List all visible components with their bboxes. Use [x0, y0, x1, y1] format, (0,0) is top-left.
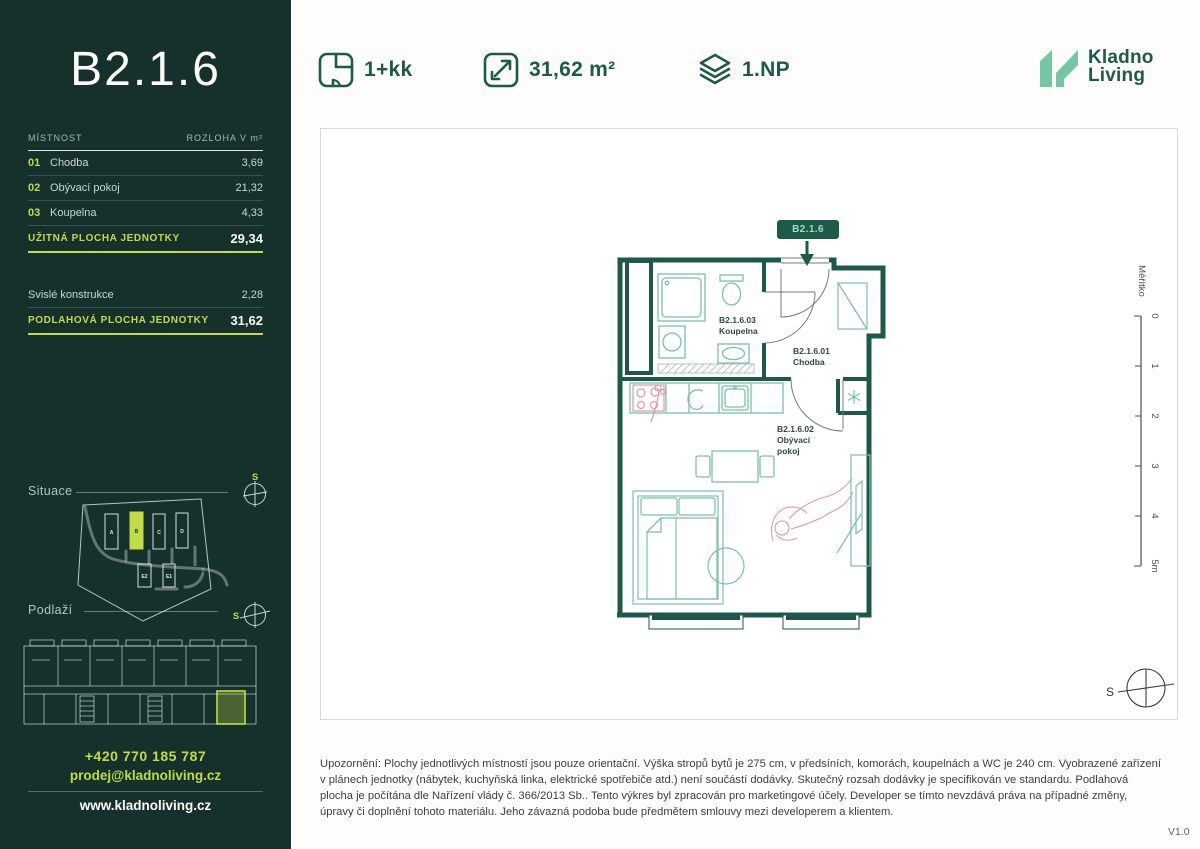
outer-walls [617, 260, 883, 615]
sidebar: B2.1.6 MÍSTNOST ROZLOHA V m² 01 Chodba 3… [0, 0, 291, 849]
boiler-closet [848, 390, 860, 404]
scale-tick: 4 [1149, 513, 1160, 518]
building-e2-label: E2 [141, 574, 147, 580]
building-b-label: B [135, 529, 139, 535]
floor-area-row: PODLAHOVÁ PLOCHA JEDNOTKY 31,62 [28, 308, 263, 335]
entrance-arrow-icon [799, 241, 815, 267]
utility-shaft [627, 261, 651, 373]
table-row: 03 Koupelna 4,33 [28, 201, 263, 226]
scale-tick: 0 [1149, 313, 1160, 318]
floor-area-label: PODLAHOVÁ PLOCHA JEDNOTKY [28, 315, 230, 326]
building-c-label: C [157, 530, 161, 536]
floor-layers-icon [697, 52, 733, 88]
room-label-chodba: B2.1.6.01 Chodba [793, 346, 830, 368]
contact-divider [28, 791, 263, 792]
col-header-room: MÍSTNOST [28, 133, 83, 143]
building-a-label: A [110, 530, 114, 536]
col-header-area: ROZLOHA V m² [186, 133, 263, 143]
website-link[interactable]: www.kladnoliving.cz [0, 798, 291, 813]
brand-logo: Kladno Living [1040, 49, 1154, 87]
stove-icon [633, 385, 666, 422]
room-name: Chodba [50, 157, 242, 169]
room-label-obyvaci: B2.1.6.02 Obývací pokoj [777, 424, 823, 457]
layout-icon [318, 52, 354, 88]
scale-tick: 5m [1149, 559, 1160, 572]
scale-tick: 3 [1149, 463, 1160, 468]
room-number: 03 [28, 207, 50, 219]
site-roads [85, 507, 227, 589]
usable-area-label: UŽITNÁ PLOCHA JEDNOTKY [28, 233, 230, 244]
floor-area-value: 31,62 [230, 313, 263, 328]
unit-title: B2.1.6 [0, 42, 291, 97]
brand-name-line2: Living [1088, 67, 1154, 85]
shower-icon [658, 274, 705, 321]
disclaimer-text: Upozornění: Plochy jednotlivých místnost… [320, 757, 1162, 821]
room-number: 01 [28, 157, 50, 169]
floor-plan-drawing: Měřítko 0 1 2 3 4 5m S [321, 129, 1177, 719]
site-boundary [78, 499, 211, 621]
person-on-lounge-sketch [771, 478, 853, 541]
podlazi-label: Podlaží [28, 603, 73, 617]
compass-north-label: S [233, 611, 239, 622]
floor-strip-plan [20, 630, 270, 745]
table-row: 01 Chodba 3,69 [28, 151, 263, 176]
building-e1-label: E1 [166, 574, 172, 580]
scale-tick: 2 [1149, 413, 1160, 418]
brand-logo-icon [1040, 49, 1078, 87]
table-row: 02 Obývací pokoj 21,32 [28, 176, 263, 201]
scale-tick: 1 [1149, 363, 1160, 368]
table-header: MÍSTNOST ROZLOHA V m² [28, 133, 263, 151]
hatch-lines [660, 364, 753, 373]
room-number: 02 [28, 182, 50, 194]
compass-north-label: S [1106, 685, 1114, 699]
throw-blanket [708, 548, 744, 584]
podlazi-compass-icon: S [228, 598, 272, 632]
podlazi-divider [84, 611, 218, 612]
room-area: 3,69 [242, 157, 263, 169]
phone-link[interactable]: +420 770 185 787 [0, 748, 291, 764]
toilet-icon [720, 275, 743, 281]
plan-compass-icon: S [1106, 669, 1174, 707]
room-area: 21,32 [235, 182, 263, 194]
dining-table-icon [696, 451, 774, 482]
room-area: 4,33 [242, 207, 263, 219]
construction-label: Svislé konstrukce [28, 289, 242, 301]
scale-label: Měřítko [1136, 265, 1147, 297]
version-label: V1.0 [1168, 826, 1190, 838]
bed-icon [633, 491, 744, 604]
layout-value: 1+kk [364, 52, 413, 88]
floor-value: 1.NP [742, 52, 790, 88]
building-d-label: D [180, 529, 184, 535]
entry-wardrobe-icon [838, 283, 867, 329]
room-area-table: MÍSTNOST ROZLOHA V m² 01 Chodba 3,69 02 … [28, 133, 263, 335]
room-name: Koupelna [50, 207, 242, 219]
floor-plan-panel: Měřítko 0 1 2 3 4 5m S B2.1.6 B2.1.6.03 … [320, 128, 1178, 720]
unit-badge: B2.1.6 [777, 220, 839, 239]
room-label-koupelna: B2.1.6.03 Koupelna [719, 315, 758, 337]
usable-area-value: 29,34 [230, 231, 263, 246]
email-link[interactable]: prodej@kladnoliving.cz [0, 768, 291, 783]
contact-block: +420 770 185 787 prodej@kladnoliving.cz [0, 748, 291, 783]
scale-ruler: Měřítko 0 1 2 3 4 5m [1134, 265, 1160, 573]
doors [764, 258, 843, 431]
construction-value: 2,28 [242, 289, 263, 301]
construction-row: Svislé konstrukce 2,28 [28, 283, 263, 308]
highlighted-unit [217, 691, 245, 724]
area-icon [483, 52, 519, 88]
usable-area-row: UŽITNÁ PLOCHA JEDNOTKY 29,34 [28, 226, 263, 253]
area-value: 31,62 m² [529, 52, 615, 88]
wardrobe-icon [837, 455, 870, 566]
room-name: Obývací pokoj [50, 182, 235, 194]
